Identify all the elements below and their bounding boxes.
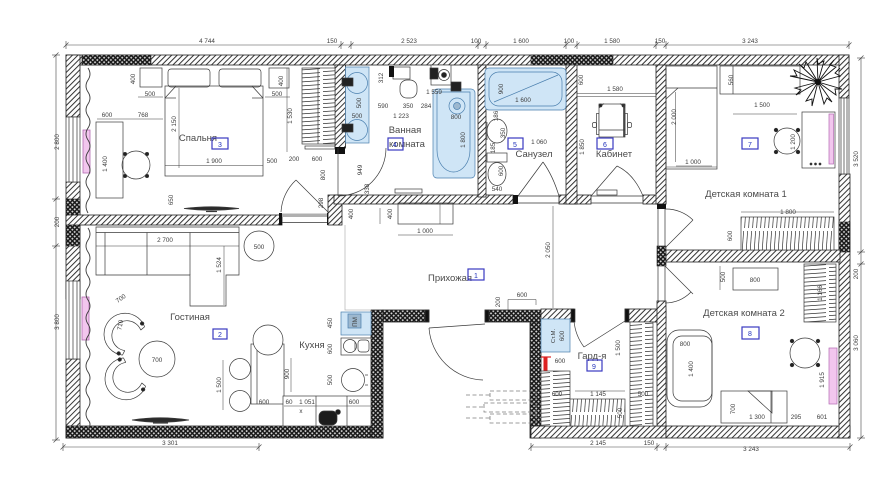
svg-text:1 900: 1 900 bbox=[206, 158, 222, 165]
svg-text:2 700: 2 700 bbox=[157, 237, 173, 244]
svg-text:Гостиная: Гостиная bbox=[170, 312, 210, 323]
svg-text:Прихожая: Прихожая bbox=[428, 273, 472, 284]
svg-text:650: 650 bbox=[168, 194, 175, 205]
svg-text:400: 400 bbox=[130, 73, 137, 84]
svg-text:600: 600 bbox=[552, 391, 563, 398]
svg-text:Кухня: Кухня bbox=[299, 340, 324, 351]
svg-text:1 915: 1 915 bbox=[819, 372, 826, 388]
svg-text:1 580: 1 580 bbox=[604, 38, 620, 45]
svg-text:2 150: 2 150 bbox=[171, 116, 178, 132]
svg-text:1 145: 1 145 bbox=[590, 391, 606, 398]
svg-text:1 559: 1 559 bbox=[426, 89, 442, 96]
svg-text:3 243: 3 243 bbox=[742, 38, 758, 45]
svg-text:1 524: 1 524 bbox=[216, 257, 223, 273]
svg-text:900: 900 bbox=[284, 368, 291, 379]
svg-text:100: 100 bbox=[564, 38, 575, 45]
svg-text:500: 500 bbox=[272, 91, 283, 98]
svg-text:500: 500 bbox=[352, 113, 363, 120]
svg-text:1 530: 1 530 bbox=[287, 108, 294, 124]
svg-text:60: 60 bbox=[285, 399, 293, 406]
svg-text:600: 600 bbox=[498, 165, 505, 176]
svg-text:3 243: 3 243 bbox=[743, 446, 759, 453]
svg-text:4: 4 bbox=[393, 142, 397, 149]
svg-text:1 166: 1 166 bbox=[817, 285, 824, 301]
svg-text:600: 600 bbox=[102, 112, 113, 119]
svg-text:1 500: 1 500 bbox=[754, 102, 770, 109]
svg-text:600: 600 bbox=[312, 156, 323, 163]
svg-text:Детская комната 1: Детская комната 1 bbox=[705, 189, 787, 200]
svg-text:312: 312 bbox=[378, 72, 385, 83]
svg-text:295: 295 bbox=[791, 414, 802, 421]
svg-text:200: 200 bbox=[495, 296, 502, 307]
svg-text:600: 600 bbox=[559, 330, 566, 341]
svg-text:8: 8 bbox=[748, 331, 752, 338]
svg-text:2 050: 2 050 bbox=[545, 242, 552, 258]
svg-text:2 800: 2 800 bbox=[54, 134, 61, 150]
svg-text:6: 6 bbox=[603, 142, 607, 149]
svg-text:600: 600 bbox=[727, 230, 734, 241]
svg-text:400: 400 bbox=[348, 208, 355, 219]
svg-text:338: 338 bbox=[364, 183, 371, 194]
svg-text:200: 200 bbox=[289, 156, 300, 163]
svg-text:1 500: 1 500 bbox=[615, 340, 622, 356]
svg-text:800: 800 bbox=[750, 277, 761, 284]
svg-text:500: 500 bbox=[638, 391, 649, 398]
svg-text:500: 500 bbox=[617, 407, 624, 418]
svg-text:186: 186 bbox=[493, 110, 500, 121]
svg-text:ПМ: ПМ bbox=[352, 317, 359, 327]
svg-text:Ванная: Ванная bbox=[389, 125, 422, 136]
svg-text:3 800: 3 800 bbox=[54, 314, 61, 330]
svg-text:150: 150 bbox=[655, 38, 666, 45]
svg-text:600: 600 bbox=[349, 399, 360, 406]
svg-text:3 060: 3 060 bbox=[853, 335, 860, 351]
svg-text:1 400: 1 400 bbox=[688, 361, 695, 377]
svg-text:500: 500 bbox=[356, 97, 363, 108]
svg-text:1 600: 1 600 bbox=[513, 38, 529, 45]
svg-text:7: 7 bbox=[748, 142, 752, 149]
svg-text:1 400: 1 400 bbox=[102, 156, 109, 172]
svg-text:800: 800 bbox=[680, 341, 691, 348]
svg-text:3: 3 bbox=[218, 142, 222, 149]
svg-text:560: 560 bbox=[728, 74, 735, 85]
svg-text:1 800: 1 800 bbox=[780, 209, 796, 216]
svg-text:600: 600 bbox=[517, 292, 528, 299]
svg-text:949: 949 bbox=[357, 164, 364, 175]
svg-text:540: 540 bbox=[492, 186, 503, 193]
svg-text:298: 298 bbox=[318, 197, 325, 208]
svg-text:350: 350 bbox=[500, 127, 507, 138]
svg-text:Санузел: Санузел bbox=[515, 149, 552, 160]
svg-text:150: 150 bbox=[644, 440, 655, 447]
svg-text:500: 500 bbox=[267, 158, 278, 165]
svg-text:800: 800 bbox=[320, 169, 327, 180]
svg-text:450: 450 bbox=[327, 317, 334, 328]
svg-text:500: 500 bbox=[254, 244, 265, 251]
svg-text:500: 500 bbox=[720, 271, 727, 282]
svg-text:1: 1 bbox=[474, 273, 478, 280]
svg-text:500: 500 bbox=[327, 374, 334, 385]
svg-text:1 223: 1 223 bbox=[393, 113, 409, 120]
svg-text:700: 700 bbox=[152, 357, 163, 364]
svg-text:350: 350 bbox=[403, 103, 414, 110]
svg-text:150: 150 bbox=[327, 38, 338, 45]
svg-text:100: 100 bbox=[471, 38, 482, 45]
svg-text:600: 600 bbox=[327, 343, 334, 354]
svg-text:Ст.М.: Ст.М. bbox=[551, 328, 557, 343]
svg-text:2: 2 bbox=[218, 332, 222, 339]
svg-text:601: 601 bbox=[817, 414, 828, 421]
svg-text:1 000: 1 000 bbox=[417, 228, 433, 235]
svg-text:Детская комната 2: Детская комната 2 bbox=[703, 308, 785, 319]
svg-text:200: 200 bbox=[54, 216, 61, 227]
svg-text:400: 400 bbox=[278, 75, 285, 86]
svg-text:1 600: 1 600 bbox=[515, 97, 531, 104]
svg-text:1 300: 1 300 bbox=[749, 414, 765, 421]
svg-text:768: 768 bbox=[138, 112, 149, 119]
svg-text:5: 5 bbox=[513, 142, 517, 149]
svg-text:185: 185 bbox=[490, 142, 497, 153]
svg-text:600: 600 bbox=[555, 358, 566, 365]
svg-text:284: 284 bbox=[421, 103, 432, 110]
svg-text:2 000: 2 000 bbox=[671, 109, 678, 125]
svg-text:1 000: 1 000 bbox=[685, 159, 701, 166]
svg-text:1 051: 1 051 bbox=[299, 399, 315, 406]
svg-text:2 523: 2 523 bbox=[401, 38, 417, 45]
svg-text:800: 800 bbox=[451, 114, 462, 121]
svg-text:1 800: 1 800 bbox=[460, 132, 467, 148]
svg-text:700: 700 bbox=[730, 403, 737, 414]
svg-text:2 145: 2 145 bbox=[590, 440, 606, 447]
svg-text:9: 9 bbox=[592, 364, 596, 371]
svg-text:1 500: 1 500 bbox=[216, 377, 223, 393]
svg-text:1 850: 1 850 bbox=[579, 139, 586, 155]
svg-text:590: 590 bbox=[378, 103, 389, 110]
svg-text:Кабинет: Кабинет bbox=[596, 149, 633, 160]
svg-text:1 060: 1 060 bbox=[531, 139, 547, 146]
svg-text:600: 600 bbox=[578, 74, 585, 85]
svg-text:1 580: 1 580 bbox=[607, 86, 623, 93]
svg-text:3 301: 3 301 bbox=[162, 440, 178, 447]
svg-text:900: 900 bbox=[498, 83, 505, 94]
svg-text:3 520: 3 520 bbox=[853, 151, 860, 167]
svg-text:600: 600 bbox=[259, 399, 270, 406]
svg-text:400: 400 bbox=[387, 208, 394, 219]
svg-text:Спальня: Спальня bbox=[179, 133, 217, 144]
svg-text:500: 500 bbox=[145, 91, 156, 98]
svg-text:1 200: 1 200 bbox=[790, 134, 797, 150]
svg-text:200: 200 bbox=[853, 268, 860, 279]
svg-text:4 744: 4 744 bbox=[199, 38, 215, 45]
